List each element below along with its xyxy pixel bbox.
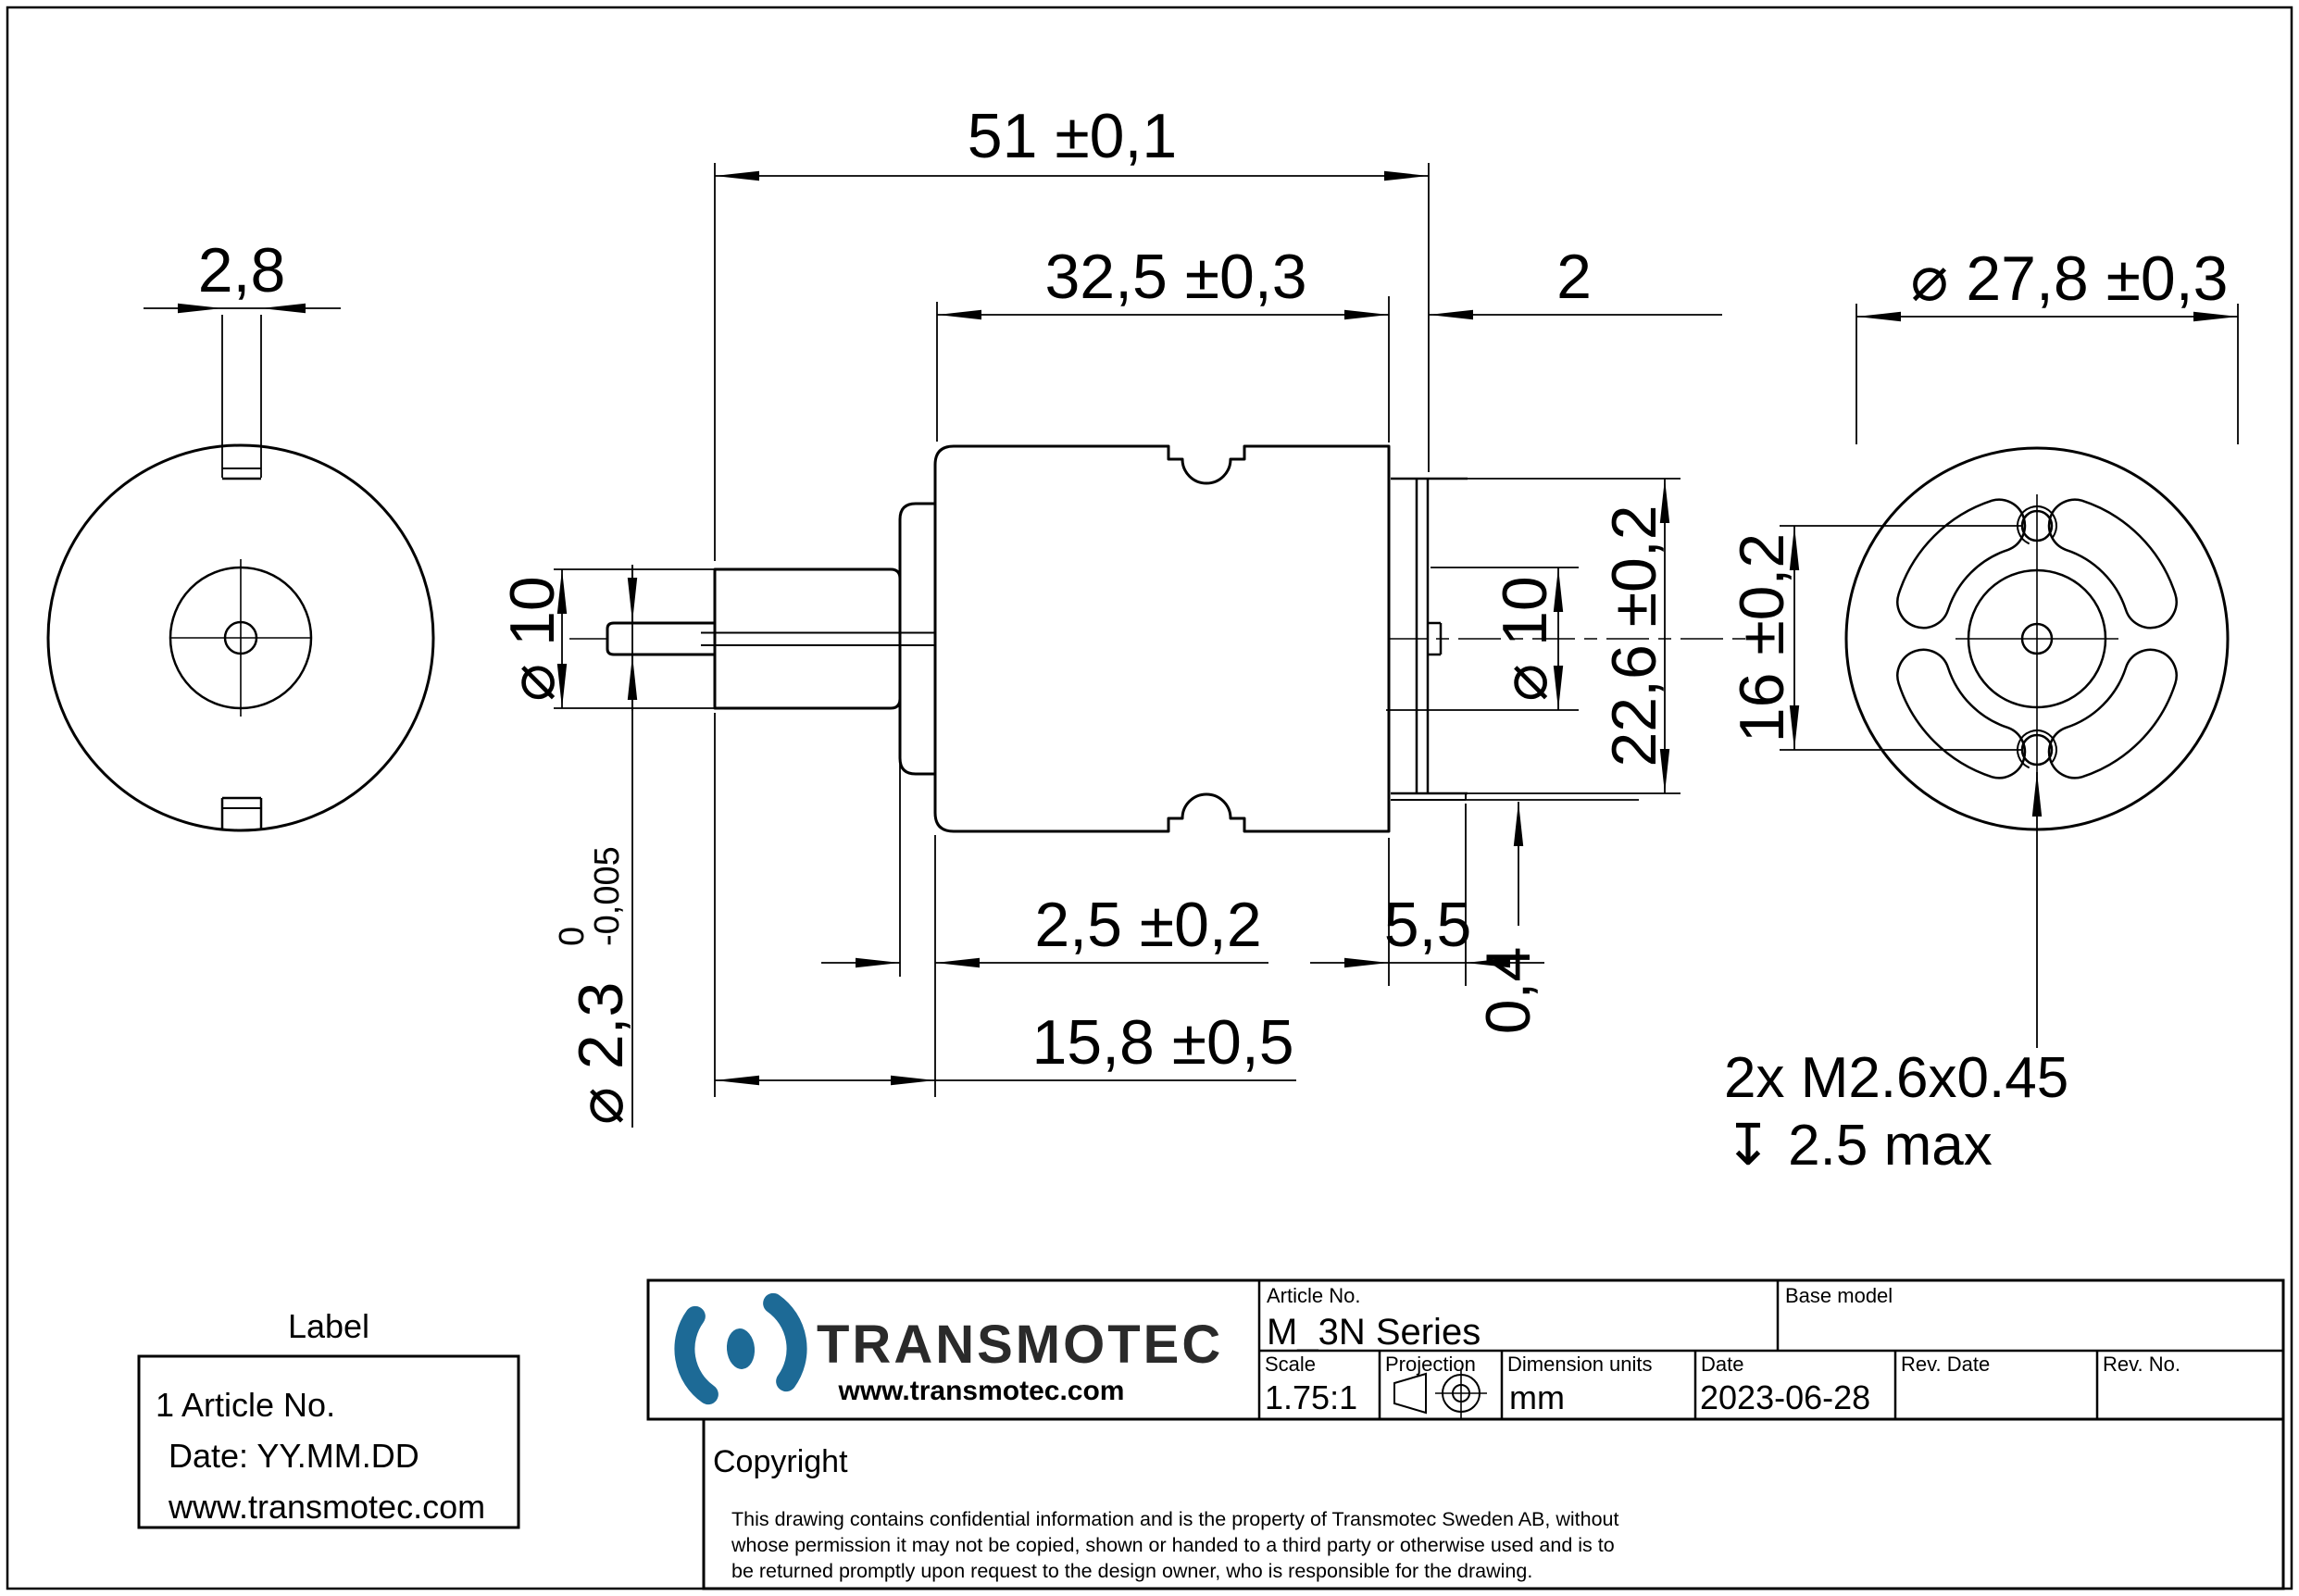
dim-label-shaft: ⌀ 2,3 [566, 982, 636, 1125]
transmotec-logo-icon [667, 1277, 815, 1421]
rev-no-label: Rev. No. [2103, 1353, 2180, 1376]
copyright-line-1: This drawing contains confidential infor… [731, 1508, 1618, 1530]
scale-value: 1.75:1 [1265, 1378, 1357, 1416]
label-line-2: Date: YY.MM.DD [169, 1437, 419, 1475]
date-label: Date [1701, 1353, 1743, 1376]
rev-date-label: Rev. Date [1901, 1353, 1990, 1376]
dim-label-shaft-tol-upper: 0 [553, 927, 592, 946]
side-view: 51 ±0,1 32,5 ±0,3 2 ⌀ 10 ⌀ 2,3 0 [497, 101, 1755, 1128]
date-value: 2023-06-28 [1700, 1378, 1870, 1416]
front-view: 2,8 [48, 235, 433, 830]
dim-label-16: 16 ±0,2 [1727, 533, 1797, 742]
brand-website: www.transmotec.com [838, 1376, 1125, 1406]
label-heading: Label [288, 1307, 369, 1345]
dim-label-32-5: 32,5 ±0,3 [1044, 242, 1306, 312]
article-no-label: Article No. [1267, 1284, 1360, 1307]
dim-label-51: 51 ±0,1 [968, 101, 1177, 171]
dim-label-front-boss: ⌀ 10 [497, 576, 568, 701]
shaft [607, 623, 715, 655]
units-value: mm [1509, 1378, 1565, 1416]
dim-label-2: 2 [1556, 242, 1592, 312]
projection-label: Projection [1385, 1353, 1476, 1376]
front-endbell [900, 504, 935, 774]
dimension-rear-diameter: ⌀ 27,8 ±0,3 [1856, 243, 2238, 444]
dim-label-27-8: ⌀ 27,8 ±0,3 [1911, 243, 2229, 314]
dimension-plate-offset: 0,4 [1466, 800, 1639, 1034]
dim-label-15-8: 15,8 ±0,5 [1031, 1007, 1293, 1078]
front-boss [715, 569, 900, 708]
dim-label-22-6: 22,6 ±0,2 [1599, 505, 1669, 767]
dim-label-2-8: 2,8 [198, 235, 286, 305]
motor-can [935, 446, 1389, 831]
dim-label-2-5: 2,5 ±0,2 [1034, 890, 1261, 960]
article-no-value: M_3N Series [1267, 1312, 1481, 1353]
dimension-rear-cap: 2 [1429, 242, 1722, 315]
engineering-drawing: 2,8 51 ±0,1 [0, 0, 2299, 1596]
thread-note: 2x M2.6x0.45 ↧ 2.5 max [1724, 772, 2068, 1178]
dimension-can-length: 32,5 ±0,3 [937, 242, 1389, 443]
first-angle-projection-icon [1394, 1368, 1487, 1418]
brand-name: TRANSMOTEC [817, 1315, 1223, 1375]
thread-note-depth: ↧ 2.5 max [1724, 1114, 1993, 1178]
label-line-3: www.transmotec.com [168, 1488, 485, 1526]
units-label: Dimension units [1507, 1353, 1653, 1376]
copyright-line-3: be returned promptly upon request to the… [731, 1560, 1532, 1582]
base-model-label: Base model [1785, 1284, 1893, 1307]
dim-label-5-5: 5,5 [1384, 890, 1472, 960]
scale-label: Scale [1265, 1353, 1316, 1376]
copyright-heading: Copyright [713, 1444, 848, 1479]
dim-label-shaft-tol-lower: -0,005 [588, 846, 627, 946]
copyright-line-2: whose permission it may not be copied, s… [731, 1534, 1615, 1556]
label-line-1: 1 Article No. [156, 1386, 335, 1424]
thread-note-line1: 2x M2.6x0.45 [1724, 1046, 2068, 1110]
label-box: Label 1 Article No. Date: YY.MM.DD www.t… [139, 1307, 519, 1527]
dimension-tab-width: 2,8 [144, 235, 341, 308]
title-block: TRANSMOTEC www.transmotec.com Article No… [648, 1277, 2283, 1589]
rear-view: ⌀ 27,8 ±0,3 16 ±0,2 2x M2.6x0.45 ↧ 2.5 m… [1724, 243, 2238, 1178]
dim-label-0-4: 0,4 [1473, 947, 1543, 1035]
dim-label-rear-boss: ⌀ 10 [1490, 576, 1560, 701]
